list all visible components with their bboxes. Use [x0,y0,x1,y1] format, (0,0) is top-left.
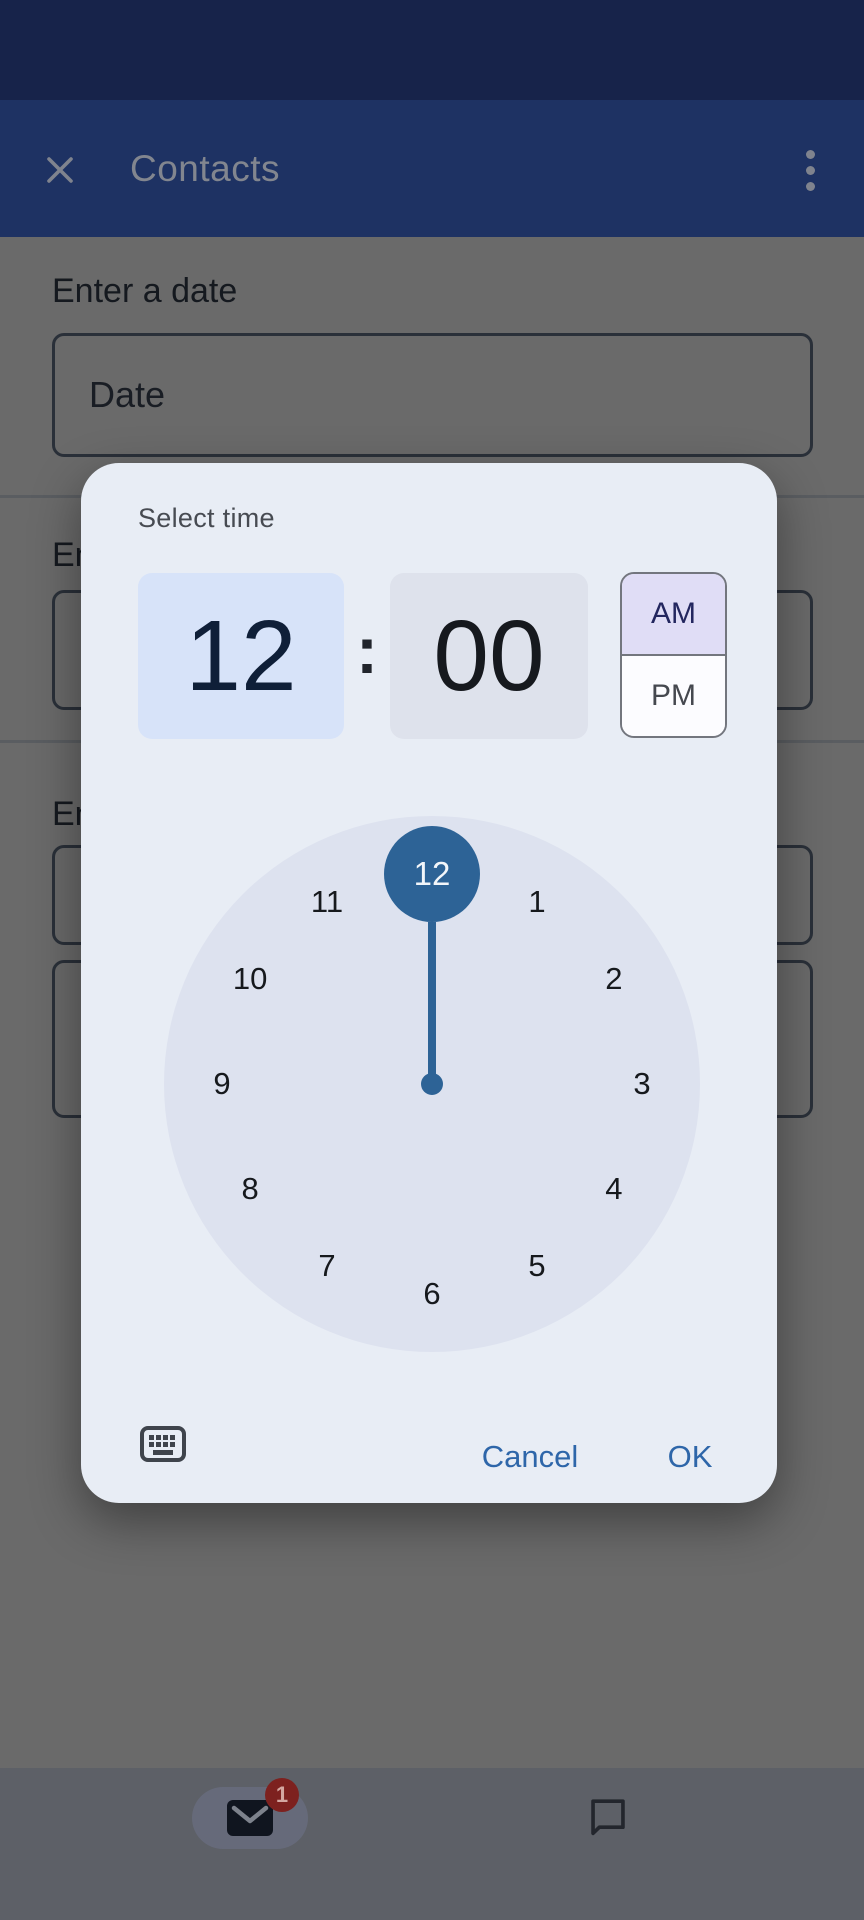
select-time-dialog: Select time 12 : 00 AM PM 12123456789101… [81,463,777,1503]
clock-number-8[interactable]: 8 [242,1171,259,1207]
page-title: Contacts [130,100,280,237]
clock-number-11[interactable]: 11 [311,884,343,920]
clock-number-1[interactable]: 1 [528,884,545,920]
overflow-dot [806,182,815,191]
clock-number-2[interactable]: 2 [605,961,622,997]
phone-screen: Contacts Enter a date Date En En Select … [0,0,864,1920]
clock-center-dot [421,1073,443,1095]
mail-badge: 1 [265,1778,299,1812]
clock-number-4[interactable]: 4 [605,1171,622,1207]
close-icon [40,150,80,190]
date-input-value: Date [89,336,165,454]
time-separator: : [344,567,390,733]
hour-display[interactable]: 12 [138,573,344,739]
ok-button[interactable]: OK [668,1439,713,1475]
status-bar [0,0,864,100]
mail-icon [227,1800,273,1836]
clock-number-7[interactable]: 7 [318,1248,335,1284]
minute-display[interactable]: 00 [390,573,588,739]
app-bar: Contacts [0,100,864,237]
overflow-dot [806,166,815,175]
cancel-button[interactable]: Cancel [482,1439,579,1475]
mail-tab[interactable]: 1 [192,1787,308,1849]
am-pm-toggle: AM PM [620,572,727,738]
clock-selection[interactable]: 12 [384,826,480,922]
clock-hand [428,922,436,1084]
date-section-label: Enter a date [52,272,237,311]
keyboard-icon [140,1426,186,1462]
bottom-nav-bar: 1 [0,1768,864,1920]
clock-dial[interactable]: 121234567891011 12 [164,816,700,1352]
clock-number-3[interactable]: 3 [633,1066,650,1102]
clock-number-5[interactable]: 5 [528,1248,545,1284]
keyboard-input-button[interactable] [128,1409,198,1479]
dialog-title: Select time [138,503,275,534]
chat-tab[interactable] [585,1795,631,1841]
am-option[interactable]: AM [622,574,725,656]
clock-number-6[interactable]: 6 [423,1276,440,1312]
clock-number-10[interactable]: 10 [233,961,267,997]
pm-option[interactable]: PM [622,656,725,736]
date-input[interactable]: Date [52,333,813,457]
close-button[interactable] [40,150,80,190]
chat-icon [585,1795,631,1841]
clock-number-9[interactable]: 9 [213,1066,230,1102]
overflow-menu-button[interactable] [796,146,824,194]
overflow-dot [806,150,815,159]
